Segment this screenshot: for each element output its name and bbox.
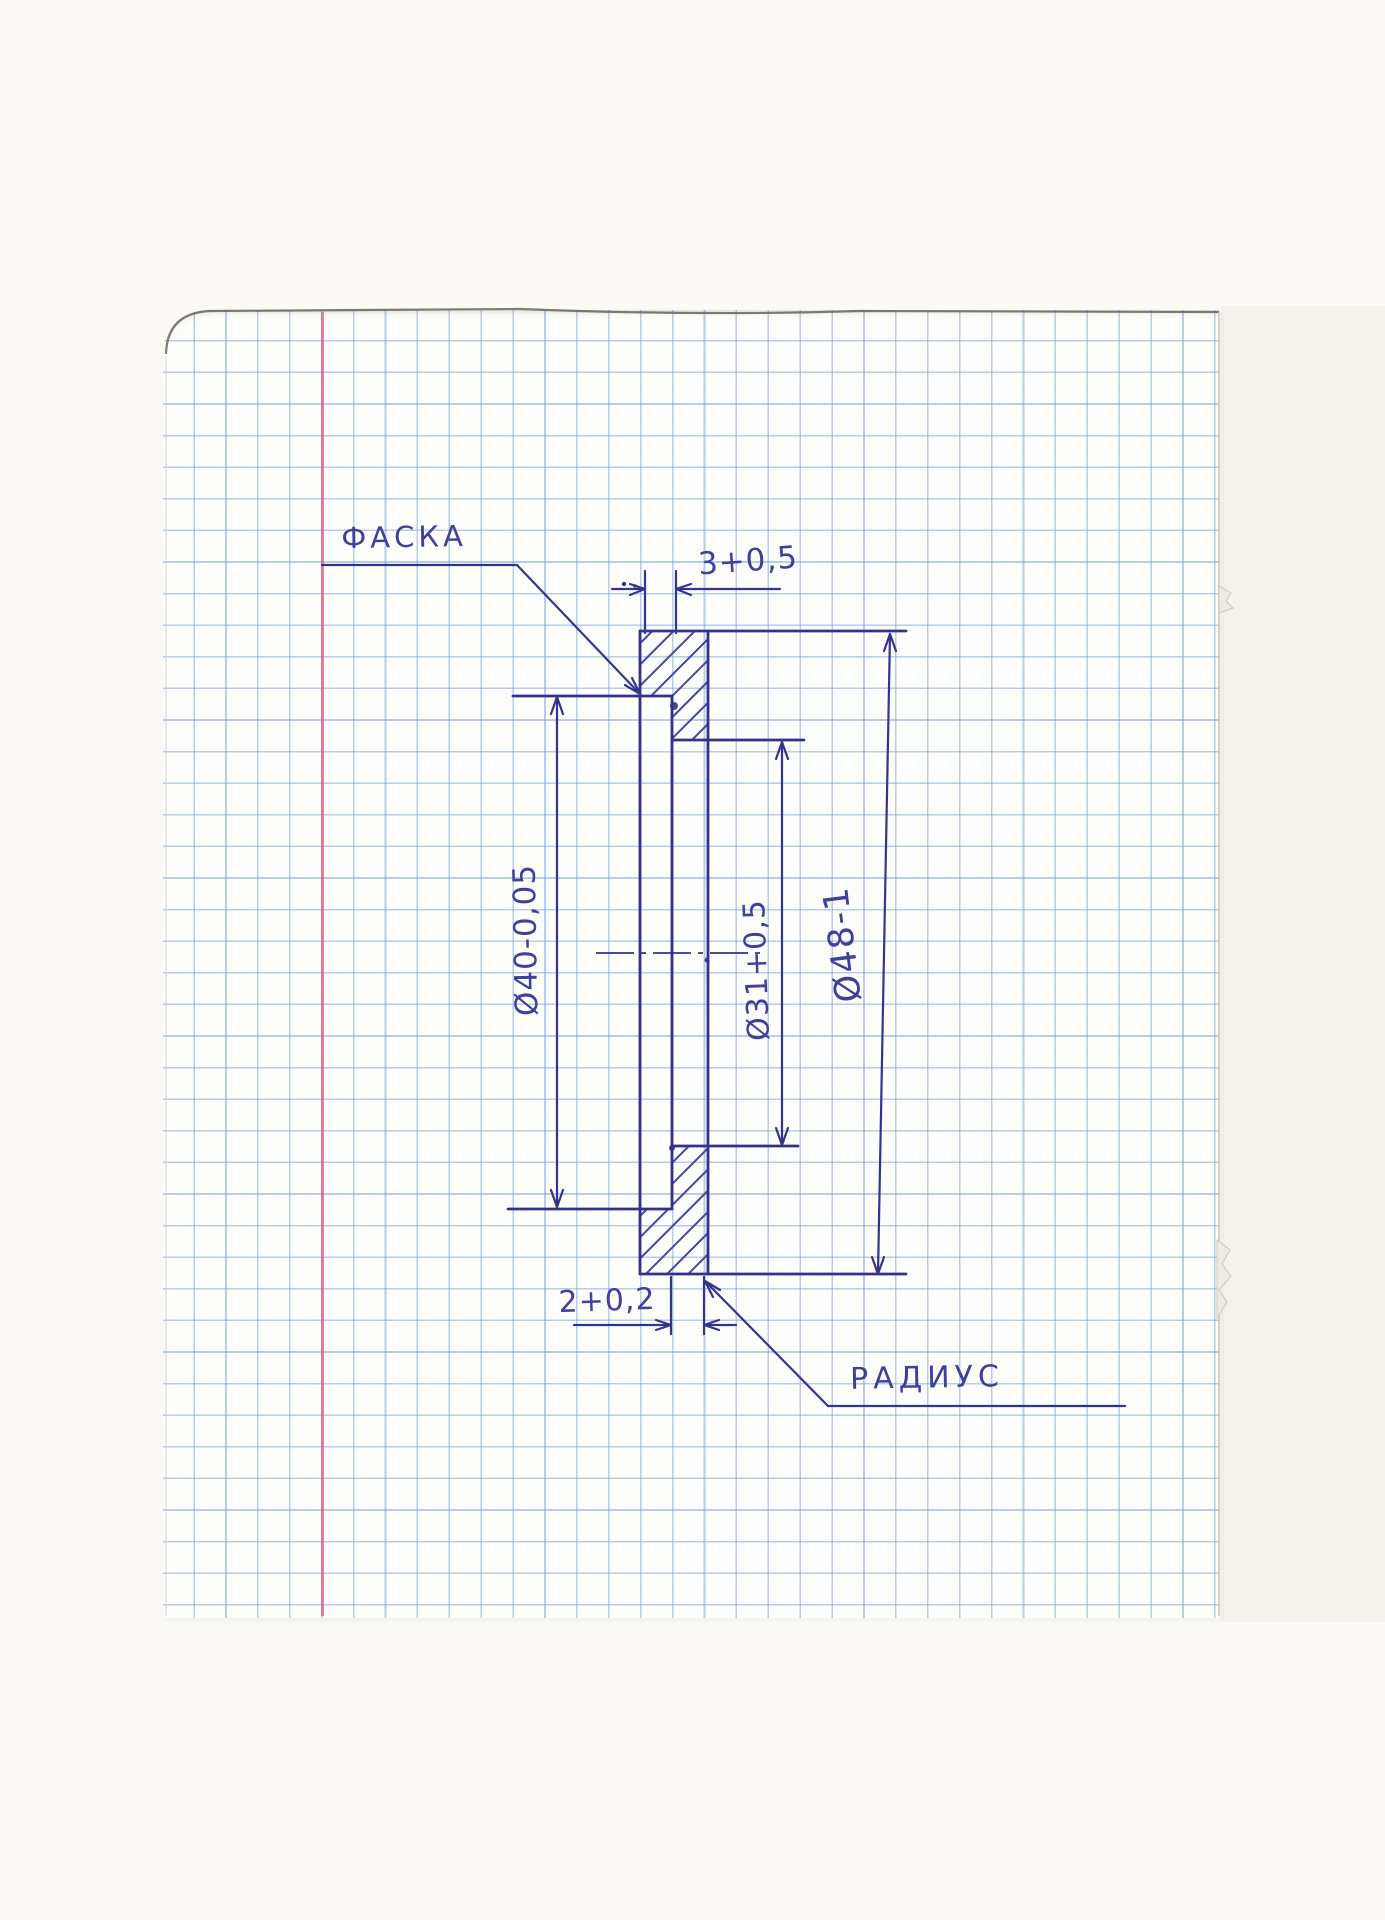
torn-edge-notch (1217, 1240, 1231, 1318)
dimension-bore-diameter-text: Ø31+0,5 (737, 899, 777, 1042)
ink-blobs (669, 702, 710, 1151)
chamfer-leader (322, 565, 640, 694)
dimension-recess-diameter (551, 697, 563, 1207)
dimension-top-width (612, 571, 780, 633)
dimension-bore-diameter (776, 742, 788, 1145)
dimension-outer-diameter (872, 634, 896, 1274)
dimension-bottom-width-text: 2+0,2 (558, 1282, 656, 1320)
chamfer-label: ФАСКА (341, 519, 467, 555)
radius-label: РАДИУС (850, 1359, 1004, 1397)
torn-edge-notch (1219, 586, 1233, 613)
scanned-page-canvas: ФАСКА 3+0,5 Ø40-0,05 Ø31+0,5 Ø48-1 2+0,2… (0, 0, 1385, 1920)
dimension-top-width-text: 3+0,5 (697, 540, 799, 583)
page-edges (166, 309, 1233, 1616)
technical-drawing-svg (0, 0, 1385, 1920)
dimension-recess-diameter-text: Ø40-0,05 (507, 864, 546, 1017)
